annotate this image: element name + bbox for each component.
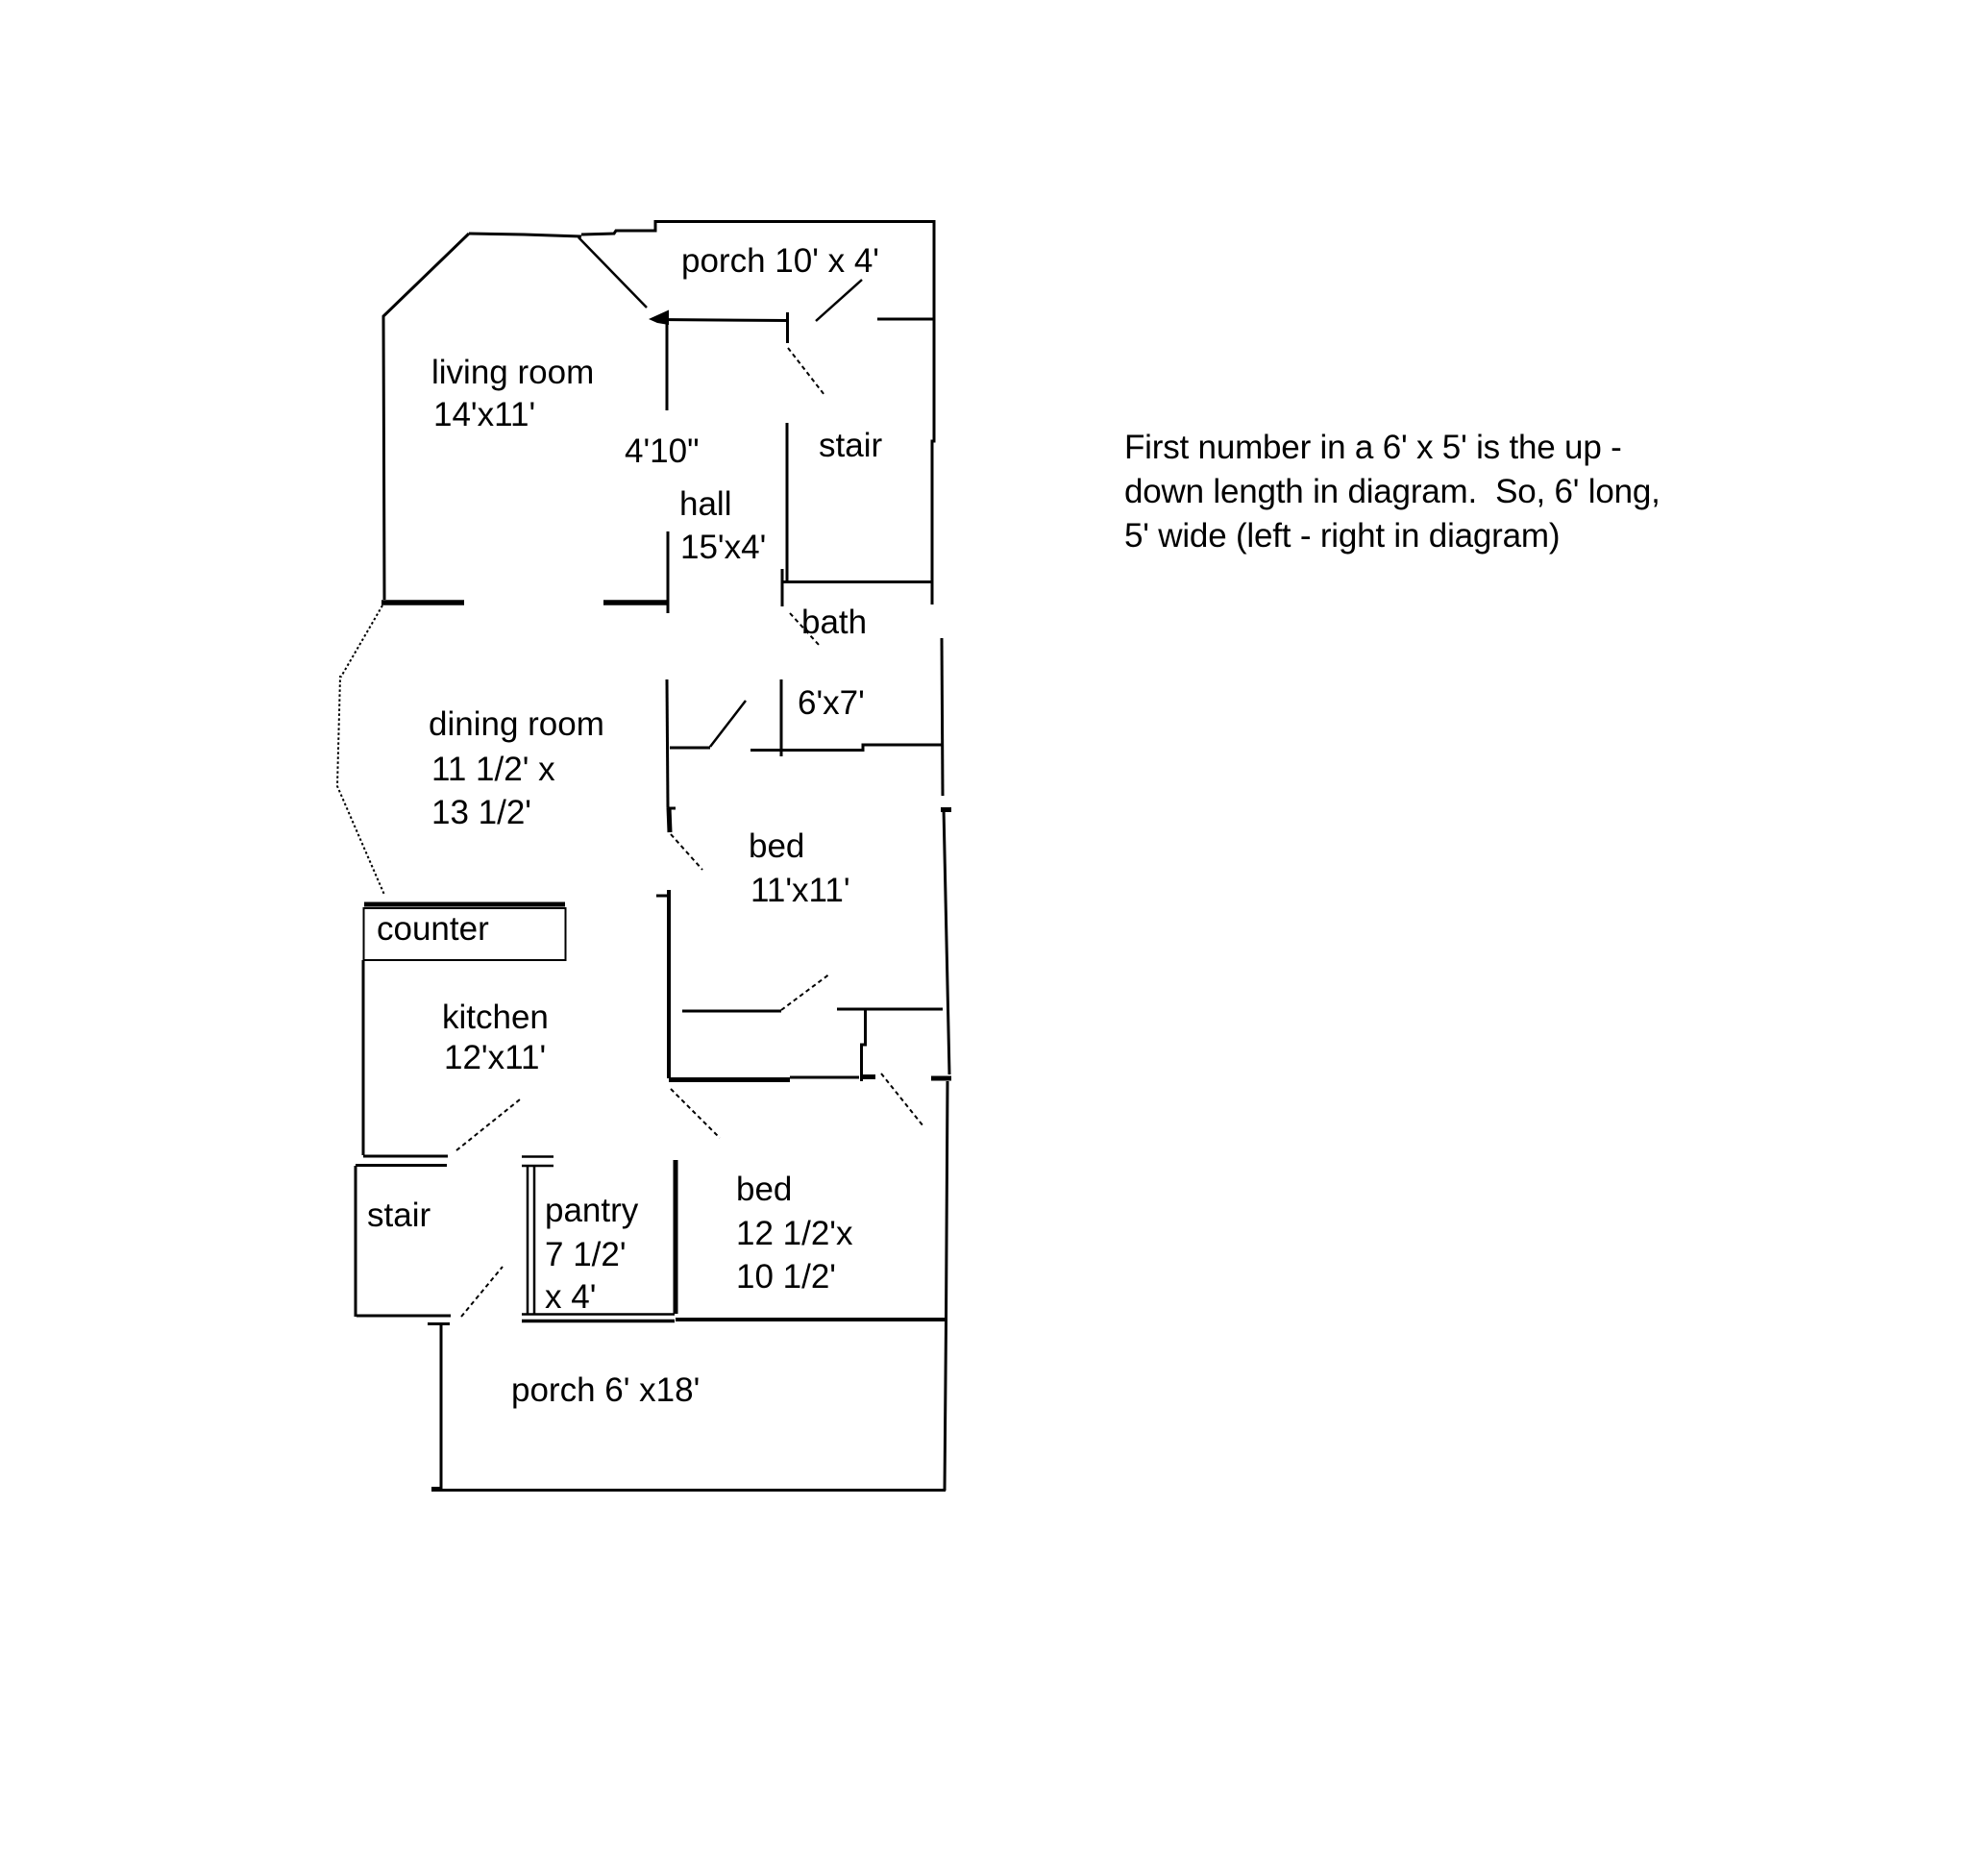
svg-text:x 4': x 4' — [545, 1278, 596, 1316]
svg-text:kitchen: kitchen — [442, 999, 549, 1036]
svg-text:stair: stair — [819, 427, 882, 464]
svg-text:stair: stair — [367, 1197, 430, 1234]
svg-text:11 1/2' x: 11 1/2' x — [431, 751, 555, 788]
svg-text:5' wide (left - right in diagr: 5' wide (left - right in diagram) — [1124, 517, 1560, 555]
svg-text:12 1/2'x: 12 1/2'x — [736, 1215, 853, 1252]
svg-text:bed: bed — [736, 1171, 792, 1208]
svg-text:14'x11': 14'x11' — [433, 396, 535, 433]
svg-text:pantry: pantry — [545, 1192, 639, 1229]
svg-text:4'10": 4'10" — [625, 432, 700, 470]
svg-text:12'x11': 12'x11' — [444, 1039, 546, 1076]
svg-text:down length in diagram. So, 6: down length in diagram. So, 6' long, — [1124, 473, 1660, 510]
svg-text:counter: counter — [377, 910, 489, 948]
svg-text:6'x7': 6'x7' — [798, 684, 865, 722]
svg-text:11'x11': 11'x11' — [750, 872, 850, 909]
svg-text:7 1/2': 7 1/2' — [545, 1236, 627, 1273]
svg-text:porch 6' x18': porch 6' x18' — [511, 1371, 700, 1409]
svg-text:bath: bath — [801, 604, 867, 641]
svg-text:dining room: dining room — [429, 705, 604, 743]
svg-text:13 1/2': 13 1/2' — [431, 794, 531, 831]
svg-text:hall: hall — [679, 485, 731, 523]
svg-text:15'x4': 15'x4' — [680, 529, 766, 566]
svg-text:bed: bed — [749, 827, 804, 865]
svg-text:10 1/2': 10 1/2' — [736, 1258, 836, 1296]
svg-text:porch 10' x 4': porch 10' x 4' — [681, 242, 879, 280]
svg-text:living room: living room — [431, 354, 594, 391]
svg-text:First number in a 6' x 5' is t: First number in a 6' x 5' is the up - — [1124, 429, 1622, 466]
